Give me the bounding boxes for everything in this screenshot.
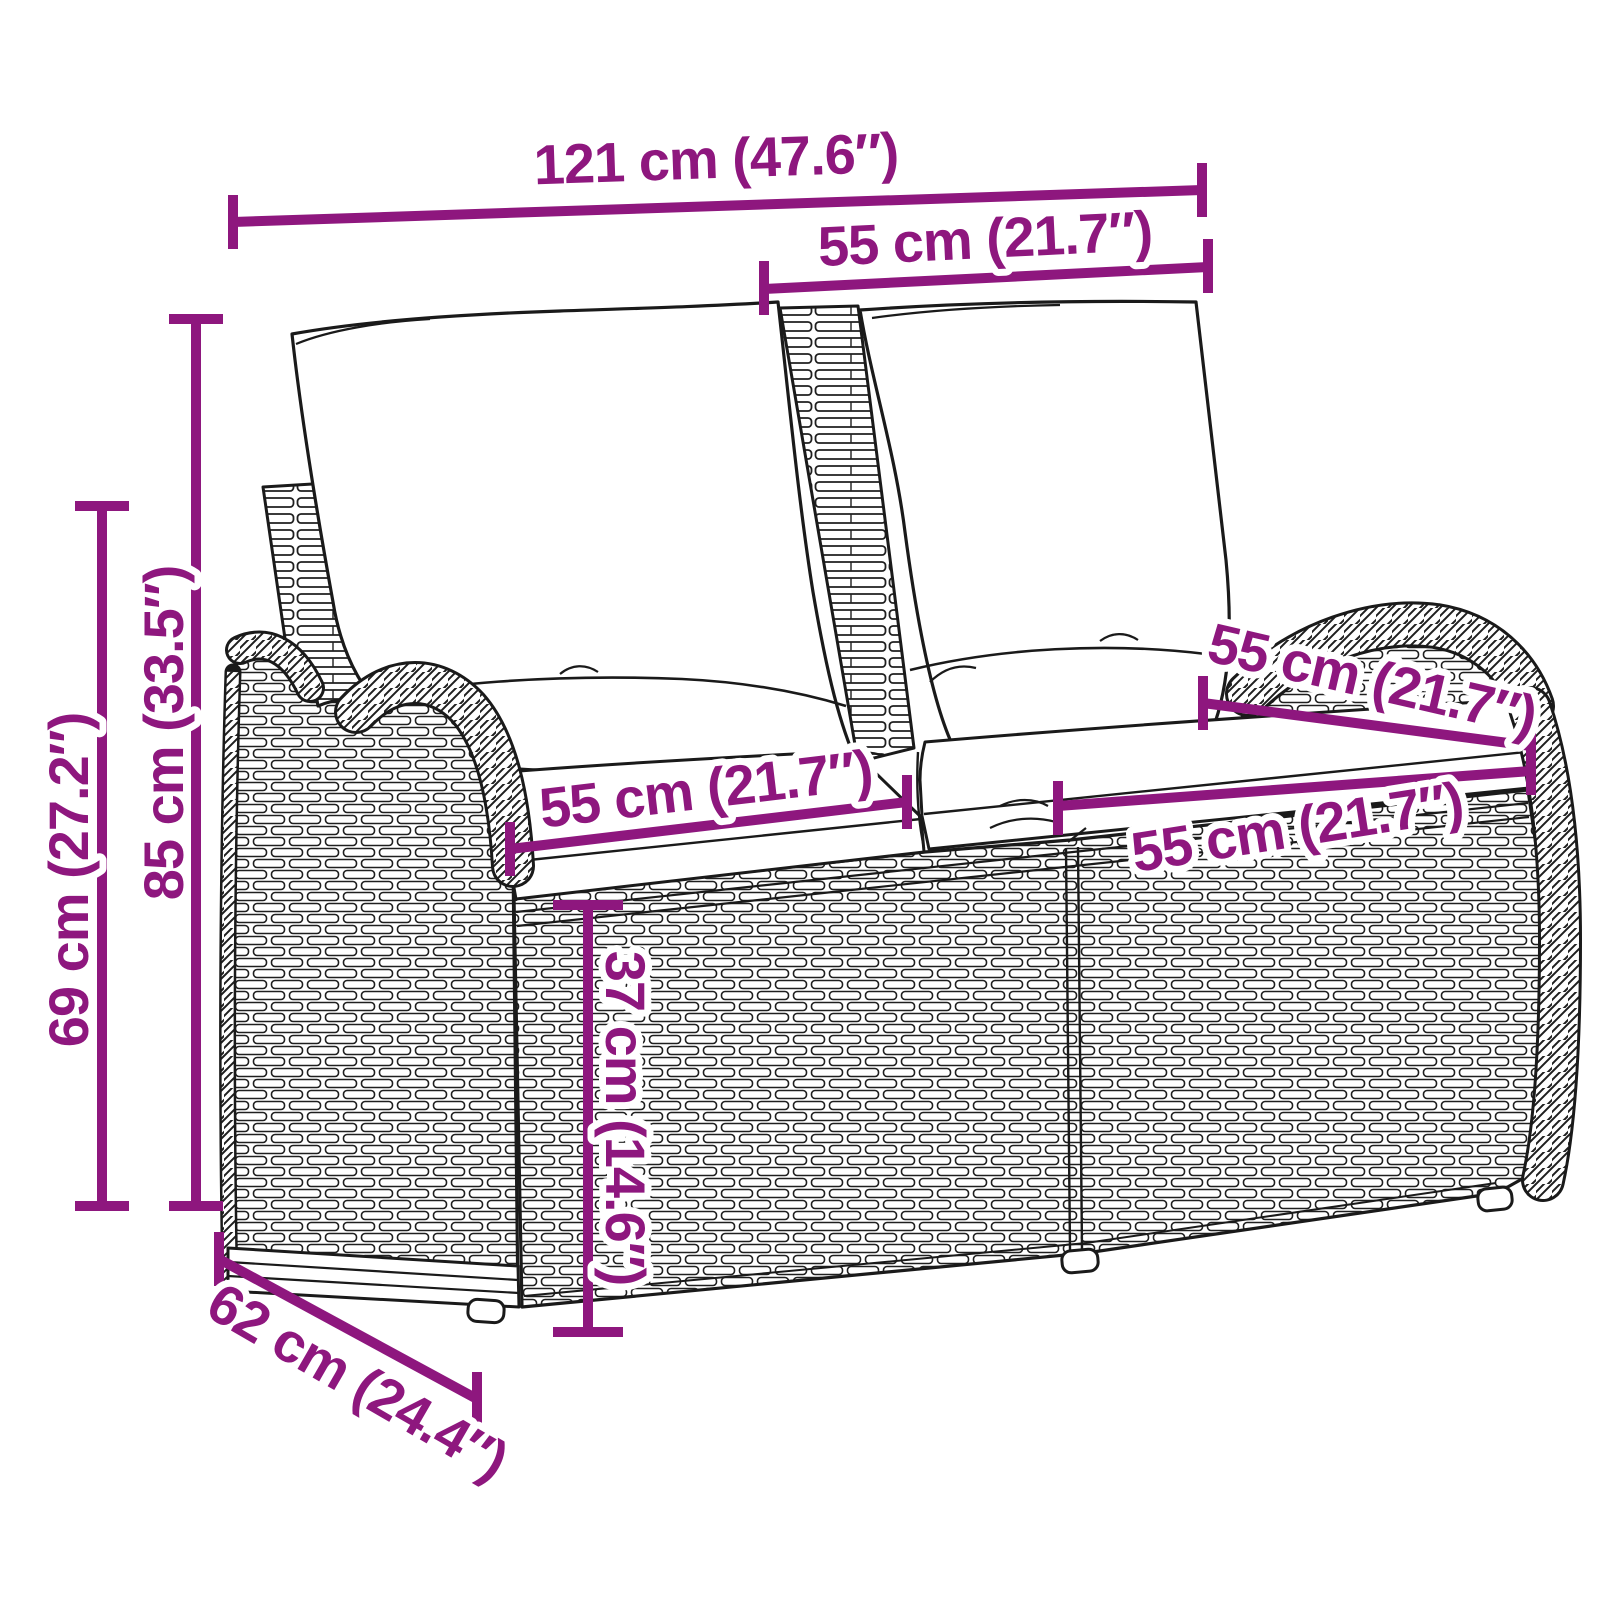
dim-armrest-height: 69 cm (27.2″) [37,506,129,1206]
dim-back-cushion-width-label: 55 cm (21.7″) [816,199,1153,278]
foot-middle [1061,1248,1099,1273]
product-dimension-diagram: 121 cm (47.6″) 55 cm (21.7″) 85 cm (33.5… [0,0,1600,1600]
foot-right [1477,1186,1513,1211]
dim-total-height-label: 85 cm (33.5″) [132,566,195,900]
dim-total-height: 85 cm (33.5″) [132,319,223,1206]
diagram-canvas: 121 cm (47.6″) 55 cm (21.7″) 85 cm (33.5… [0,0,1600,1600]
dim-back-cushion-width: 55 cm (21.7″) [764,199,1208,315]
left-armrest [227,642,519,1307]
dim-armrest-height-label: 69 cm (27.2″) [37,713,100,1047]
dim-seat-height-label: 37 cm (14.6″) [594,951,657,1285]
dim-overall-width-label: 121 cm (47.6″) [533,121,900,197]
foot-left [467,1299,504,1323]
back-cushion-right [860,301,1229,744]
